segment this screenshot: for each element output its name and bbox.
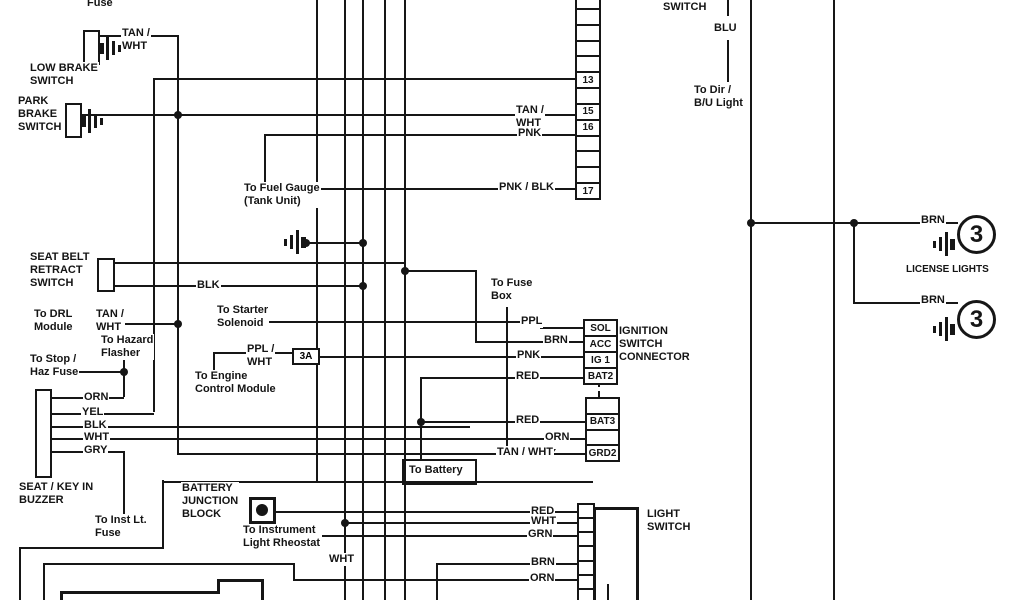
label-gry-buzzer: GRY	[83, 444, 108, 457]
label-to-battery: To Battery	[408, 464, 464, 477]
label-wht-ls: WHT	[530, 515, 557, 528]
license-light-bulb-icon: 3	[957, 300, 996, 339]
label-to-inst-fuse: To Inst Lt. Fuse	[94, 514, 148, 540]
label-yel-buzzer: YEL	[81, 406, 104, 419]
wire	[436, 563, 438, 600]
label-fuel-gauge: To Fuel Gauge (Tank Unit)	[243, 182, 321, 208]
wire	[78, 371, 124, 373]
junction-dot	[850, 219, 858, 227]
ground-icon	[281, 230, 306, 254]
label-fuse-top: Fuse	[86, 0, 114, 10]
ground-icon	[930, 232, 955, 256]
wire	[853, 222, 855, 304]
wire	[265, 321, 541, 323]
label-tanwht-grd: TAN / WHT	[496, 446, 554, 459]
junction-dot	[359, 282, 367, 290]
buzzer-connector-symbol	[35, 389, 52, 478]
bulkhead-connector: 13 15 16 17	[575, 0, 601, 200]
terminal-sol: SOL	[585, 321, 616, 335]
wire	[113, 262, 404, 264]
label-to-starter: To Starter Solenoid	[216, 304, 269, 330]
fuse-3a-label: 3A	[300, 351, 313, 363]
terminal-17: 17	[577, 182, 599, 198]
label-to-stop-haz: To Stop / Haz Fuse	[29, 353, 79, 379]
wire	[436, 563, 577, 565]
terminal-acc: ACC	[585, 335, 616, 351]
ignition-switch-connector: SOL ACC IG 1 BAT2	[583, 319, 618, 385]
label-tanwht-lowbrake: TAN / WHT	[121, 27, 151, 53]
label-brn-ls: BRN	[530, 556, 556, 569]
junction-dot	[174, 111, 182, 119]
label-low-brake-switch: LOW BRAKE SWITCH	[29, 62, 99, 88]
component-outline	[60, 591, 63, 600]
seat-belt-switch-symbol	[97, 258, 115, 292]
bulb-filament: 3	[970, 306, 983, 334]
wire	[420, 421, 585, 423]
wire	[43, 563, 295, 565]
component-outline	[261, 579, 264, 600]
label-orn-buzzer: ORN	[83, 391, 109, 404]
wire	[113, 285, 364, 287]
wire	[153, 78, 575, 80]
bus-line	[833, 0, 835, 600]
label-blu: BLU	[713, 22, 738, 35]
junction-dot	[401, 267, 409, 275]
wire	[475, 270, 477, 343]
wire	[120, 323, 178, 325]
label-pnk-ig: PNK	[516, 349, 541, 362]
junction-dot	[359, 239, 367, 247]
label-to-fuse-box: To Fuse Box	[490, 277, 533, 303]
label-to-hazard: To Hazard Flasher	[100, 334, 154, 360]
label-pnk-blk: PNK / BLK	[498, 181, 555, 194]
wire	[404, 270, 476, 272]
fuse-3a-box: 3A	[292, 348, 320, 365]
label-brn-acc: BRN	[543, 334, 569, 347]
battery-junction-dot	[256, 504, 268, 516]
wire	[727, 0, 729, 16]
bus-line	[316, 0, 318, 481]
label-seat-belt-switch: SEAT BELT RETRACT SWITCH	[29, 251, 90, 290]
label-blk-seatbelt: BLK	[196, 279, 221, 292]
label-ppl-wht: PPL / WHT	[246, 343, 275, 369]
label-wht-buzzer: WHT	[83, 431, 110, 444]
wire	[43, 563, 45, 600]
wire	[506, 307, 508, 453]
wire	[153, 78, 155, 412]
bus-line	[362, 0, 364, 600]
label-license-lights: LICENSE LIGHTS	[905, 264, 990, 276]
license-light-bulb-icon: 3	[957, 215, 996, 254]
wire	[540, 327, 583, 329]
junction-dot	[174, 320, 182, 328]
wire	[19, 547, 162, 549]
bus-line	[750, 0, 752, 600]
wire	[19, 547, 21, 600]
wire	[50, 426, 470, 428]
lower-connector: BAT3 GRD2	[585, 397, 620, 462]
junction-dot	[417, 418, 425, 426]
label-orn-lower: ORN	[544, 431, 570, 444]
terminal-bat3: BAT3	[587, 413, 618, 429]
bus-line	[404, 0, 406, 600]
wire	[264, 134, 266, 182]
label-red-bat3: RED	[515, 414, 540, 427]
label-to-rheostat: To Instrument Light Rheostat	[242, 524, 321, 550]
junction-dot	[341, 519, 349, 527]
label-switch-top: SWITCH	[662, 1, 707, 14]
park-brake-switch-symbol	[65, 103, 82, 138]
terminal-16: 16	[577, 119, 599, 135]
label-light-switch: LIGHT SWITCH	[646, 508, 691, 534]
ground-icon	[81, 109, 106, 133]
label-pnk-16: PNK	[517, 127, 542, 140]
wire	[318, 356, 583, 358]
bus-line	[344, 0, 346, 600]
ground-icon	[930, 317, 955, 341]
label-orn-ls: ORN	[529, 572, 555, 585]
label-brn-license2: BRN	[920, 294, 946, 307]
label-ignition-connector: IGNITION SWITCH CONNECTOR	[618, 325, 691, 364]
low-brake-switch-symbol	[83, 30, 100, 65]
wire	[727, 40, 729, 82]
junction-dot	[747, 219, 755, 227]
terminal-grd2: GRD2	[587, 444, 618, 460]
label-red-bat2: RED	[515, 370, 540, 383]
junction-dot	[120, 368, 128, 376]
terminal-15: 15	[577, 103, 599, 119]
component-outline	[217, 579, 264, 582]
label-ppl: PPL	[520, 315, 543, 328]
label-grn-ls: GRN	[527, 528, 553, 541]
wiring-diagram: 3A 13 15 16 17 SOL ACC IG 1 BAT2 BAT3 GR…	[0, 0, 1024, 600]
wire	[303, 242, 364, 244]
wire	[77, 114, 575, 116]
wire	[177, 35, 179, 453]
terminal-bat2: BAT2	[585, 367, 616, 383]
component-outline	[60, 591, 220, 594]
wire	[420, 377, 583, 379]
bulb-filament: 3	[970, 221, 983, 249]
label-tanwht-drl: TAN / WHT	[95, 308, 125, 334]
wire	[123, 451, 125, 514]
label-to-engine: To Engine Control Module	[194, 370, 277, 396]
wire	[162, 480, 164, 549]
wire	[50, 438, 585, 440]
terminal-13: 13	[577, 71, 599, 87]
label-to-drl: To DRL Module	[33, 308, 74, 334]
label-battery-junction: BATTERY JUNCTION BLOCK	[181, 482, 239, 521]
bus-line	[384, 0, 386, 600]
label-to-dir: To Dir / B/U Light	[693, 84, 744, 110]
label-seat-key-buzzer: SEAT / KEY IN BUZZER	[18, 481, 94, 507]
label-brn-license1: BRN	[920, 214, 946, 227]
label-wht-down: WHT	[328, 553, 355, 566]
label-park-brake-switch: PARK BRAKE SWITCH	[17, 95, 62, 134]
light-switch-body	[593, 507, 639, 600]
wire	[213, 352, 215, 371]
terminal-ig1: IG 1	[585, 351, 616, 367]
